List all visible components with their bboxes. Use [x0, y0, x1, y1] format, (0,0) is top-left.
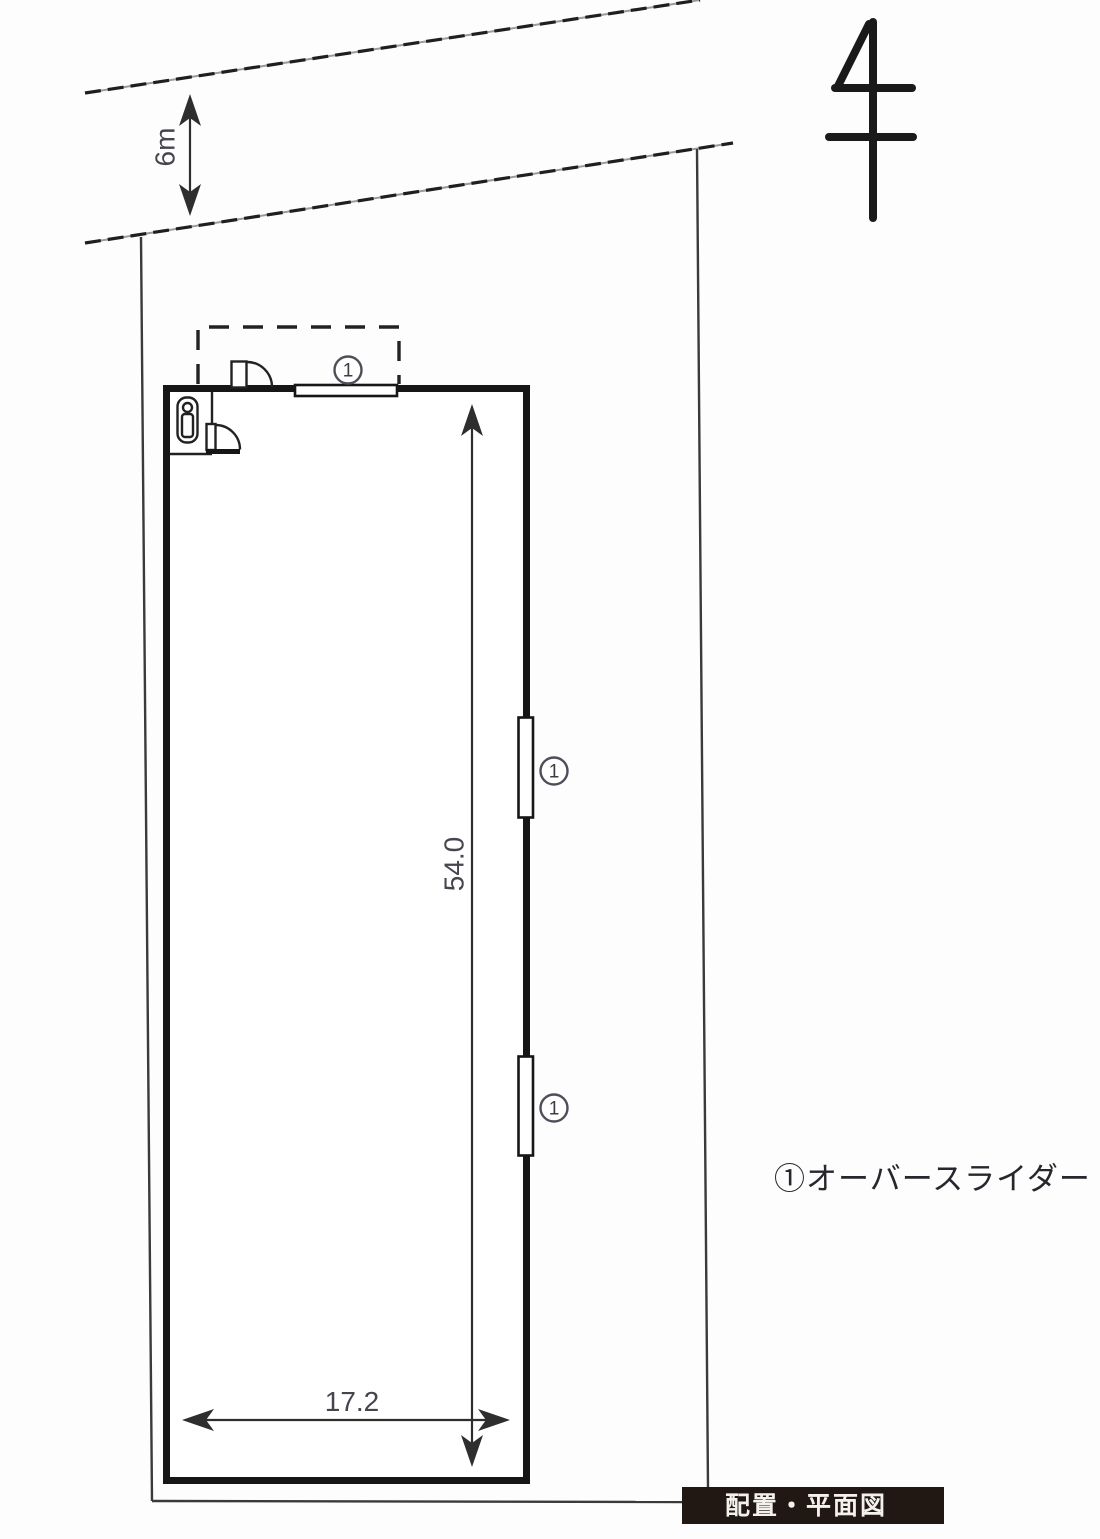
toilet-icon [178, 398, 198, 443]
site-plan-canvas: 6m [0, 0, 1100, 1539]
boundary-left [141, 237, 152, 1501]
entrance-door-arc [247, 362, 272, 387]
road-width-label: 6m [150, 128, 181, 167]
title-badge-label: 配置・平面図 [725, 1492, 887, 1520]
overhead-slider-opening-top [295, 385, 397, 396]
entrance-door-icon [232, 362, 273, 388]
marker-label: 1 [549, 762, 560, 783]
north-icon-diagonal [838, 24, 869, 86]
canopy-dashed-outline [198, 327, 399, 384]
entrance-door-leaf [232, 362, 247, 388]
toilet-icon-bowl [178, 398, 198, 443]
north-direction-icon [829, 22, 913, 218]
toilet-door-leaf [207, 424, 216, 450]
legend-overhead-slider: ①オーバースライダー [774, 1162, 1091, 1197]
width-dim-label: 17.2 [325, 1386, 380, 1417]
opening-marker-2: 1 [541, 758, 568, 785]
height-dim-label: 54.0 [439, 837, 470, 892]
marker-label: 1 [343, 361, 354, 382]
road-width-dimension: 6m [150, 94, 202, 216]
opening-marker-1: 1 [335, 357, 362, 384]
boundary-right [697, 149, 708, 1488]
opening-marker-3: 1 [541, 1095, 568, 1122]
overhead-slider-opening-right-1 [519, 718, 534, 818]
title-badge: 配置・平面図 [682, 1487, 944, 1524]
overhead-slider-opening-right-2 [519, 1057, 534, 1156]
boundary-bottom [152, 1501, 684, 1502]
site-plan-page: 6m [0, 0, 1100, 1539]
marker-label: 1 [549, 1099, 560, 1120]
